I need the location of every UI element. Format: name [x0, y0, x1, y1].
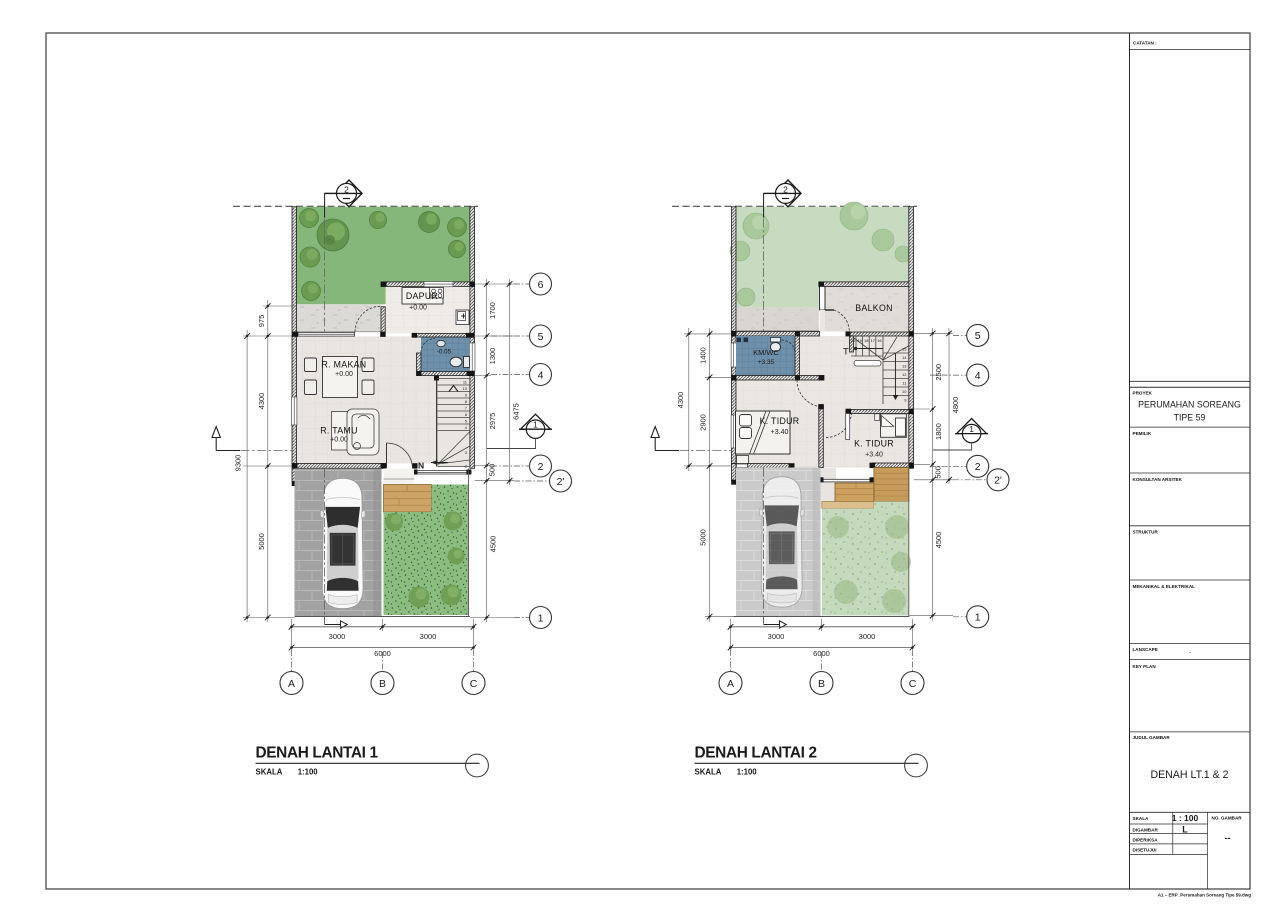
svg-text:20: 20	[851, 338, 856, 343]
svg-text:3000: 3000	[859, 632, 876, 641]
svg-text:4300: 4300	[676, 392, 685, 409]
svg-text:15: 15	[902, 347, 907, 352]
svg-text:A: A	[288, 678, 295, 690]
svg-text:500: 500	[934, 466, 943, 479]
svg-text:2': 2'	[994, 475, 1002, 487]
svg-text:TIPE 59: TIPE 59	[1174, 413, 1206, 423]
svg-text:DISETUJUI: DISETUJUI	[1133, 848, 1157, 853]
svg-text:2: 2	[344, 185, 349, 195]
svg-text:DENAH LT.1 & 2: DENAH LT.1 & 2	[1150, 769, 1228, 781]
svg-text:1: 1	[969, 424, 974, 434]
svg-text:B: B	[379, 678, 386, 690]
svg-text:3000: 3000	[420, 632, 437, 641]
svg-text:+3.35: +3.35	[758, 359, 775, 366]
svg-text:4300: 4300	[257, 393, 266, 410]
svg-text:DENAH LANTAI 2: DENAH LANTAI 2	[695, 745, 817, 762]
svg-text:5: 5	[538, 331, 544, 343]
svg-text:JUDUL GAMBAR: JUDUL GAMBAR	[1133, 735, 1171, 740]
svg-text:4500: 4500	[934, 532, 943, 549]
svg-text:K. TIDUR: K. TIDUR	[854, 439, 894, 449]
svg-text:STRUKTUR: STRUKTUR	[1133, 529, 1159, 534]
svg-text:C: C	[909, 678, 917, 690]
svg-text:LANSCAPE: LANSCAPE	[1133, 647, 1158, 652]
svg-text:19: 19	[857, 338, 862, 343]
svg-text:A: A	[727, 678, 734, 690]
svg-text:2975: 2975	[488, 413, 497, 430]
svg-text:14: 14	[902, 355, 907, 360]
svg-text:1400: 1400	[699, 347, 708, 364]
svg-text:T: T	[843, 347, 849, 358]
svg-text:C: C	[470, 678, 478, 690]
svg-text:CATATAN :: CATATAN :	[1133, 41, 1157, 46]
svg-text:KM/WC: KM/WC	[753, 348, 779, 357]
svg-text:SKALA: SKALA	[695, 768, 722, 777]
svg-text:500: 500	[488, 464, 497, 477]
svg-text:B: B	[818, 678, 825, 690]
svg-text:1: 1	[538, 612, 544, 624]
svg-text:R. TAMU: R. TAMU	[320, 426, 357, 436]
svg-text:13: 13	[902, 364, 907, 369]
svg-text:DAPUR: DAPUR	[406, 291, 438, 301]
svg-text:2: 2	[538, 461, 544, 473]
svg-text:5: 5	[975, 330, 981, 342]
svg-text:17: 17	[871, 338, 876, 343]
svg-text:3000: 3000	[768, 632, 785, 641]
svg-text:-: -	[1189, 651, 1191, 657]
svg-text:MEKANIKAL & ELEKTRIKAL: MEKANIKAL & ELEKTRIKAL	[1133, 584, 1196, 589]
svg-text:5000: 5000	[257, 533, 266, 550]
svg-text:DIGAMBAR: DIGAMBAR	[1133, 827, 1159, 832]
svg-text:4: 4	[538, 369, 544, 381]
svg-text:1 : 100: 1 : 100	[1172, 813, 1199, 823]
svg-text:DENAH LANTAI 1: DENAH LANTAI 1	[256, 745, 379, 762]
svg-text:10: 10	[902, 389, 907, 394]
svg-text:1:100: 1:100	[737, 768, 758, 777]
svg-text:-0.05: -0.05	[437, 349, 452, 356]
svg-text:3000: 3000	[329, 632, 346, 641]
svg-text:PERUMAHAN SOREANG: PERUMAHAN SOREANG	[1138, 400, 1241, 410]
svg-text:2': 2'	[557, 476, 565, 488]
svg-text:16: 16	[877, 338, 882, 343]
svg-text:4: 4	[975, 370, 981, 382]
svg-text:SKALA: SKALA	[256, 768, 283, 777]
svg-text:1800: 1800	[934, 423, 943, 440]
svg-text:+0.00: +0.00	[335, 371, 353, 378]
svg-text:KEY PLAN: KEY PLAN	[1133, 664, 1157, 669]
svg-text:1: 1	[533, 420, 538, 430]
svg-text:6: 6	[538, 279, 544, 291]
svg-text:+3.40: +3.40	[865, 452, 883, 459]
svg-text:1300: 1300	[488, 348, 497, 365]
svg-text:DIPERIKSA: DIPERIKSA	[1133, 837, 1159, 842]
svg-text:+3.40: +3.40	[771, 429, 789, 436]
svg-text:2900: 2900	[699, 414, 708, 431]
svg-text:PEMILIK: PEMILIK	[1133, 431, 1152, 436]
svg-text:NO. GAMBAR: NO. GAMBAR	[1212, 815, 1243, 820]
svg-text:4800: 4800	[951, 397, 960, 414]
svg-text:9300: 9300	[234, 455, 243, 472]
svg-text:1:100: 1:100	[298, 768, 319, 777]
svg-text:N: N	[418, 461, 424, 471]
svg-text:KONSULTAN ARSITEK: KONSULTAN ARSITEK	[1133, 477, 1183, 482]
svg-text:2: 2	[783, 185, 788, 195]
svg-text:BALKON: BALKON	[855, 303, 893, 313]
svg-text:1: 1	[975, 612, 981, 624]
svg-text:2: 2	[975, 461, 981, 473]
svg-text:4500: 4500	[489, 536, 498, 553]
svg-text:12: 12	[902, 372, 907, 377]
svg-text:+0.00: +0.00	[409, 305, 427, 312]
svg-text:A1 – ERP_Perumahan Soreang Tip: A1 – ERP_Perumahan Soreang Tipe 59.dwg	[1158, 893, 1251, 898]
svg-text:R. MAKAN: R. MAKAN	[322, 360, 367, 370]
svg-text:2500: 2500	[934, 364, 943, 381]
svg-text:L: L	[1182, 824, 1188, 834]
svg-text:5000: 5000	[699, 529, 708, 546]
svg-text:10: 10	[463, 386, 468, 391]
svg-text:1700: 1700	[488, 302, 497, 319]
svg-text:6475: 6475	[512, 403, 521, 420]
svg-text:18: 18	[864, 338, 869, 343]
svg-text:--: --	[1225, 833, 1231, 843]
svg-text:PROYEK: PROYEK	[1133, 391, 1153, 396]
svg-text:+0.00: +0.00	[330, 437, 348, 444]
svg-text:K. TIDUR: K. TIDUR	[760, 416, 800, 426]
svg-text:975: 975	[257, 315, 266, 328]
svg-text:SKALA: SKALA	[1133, 816, 1150, 821]
